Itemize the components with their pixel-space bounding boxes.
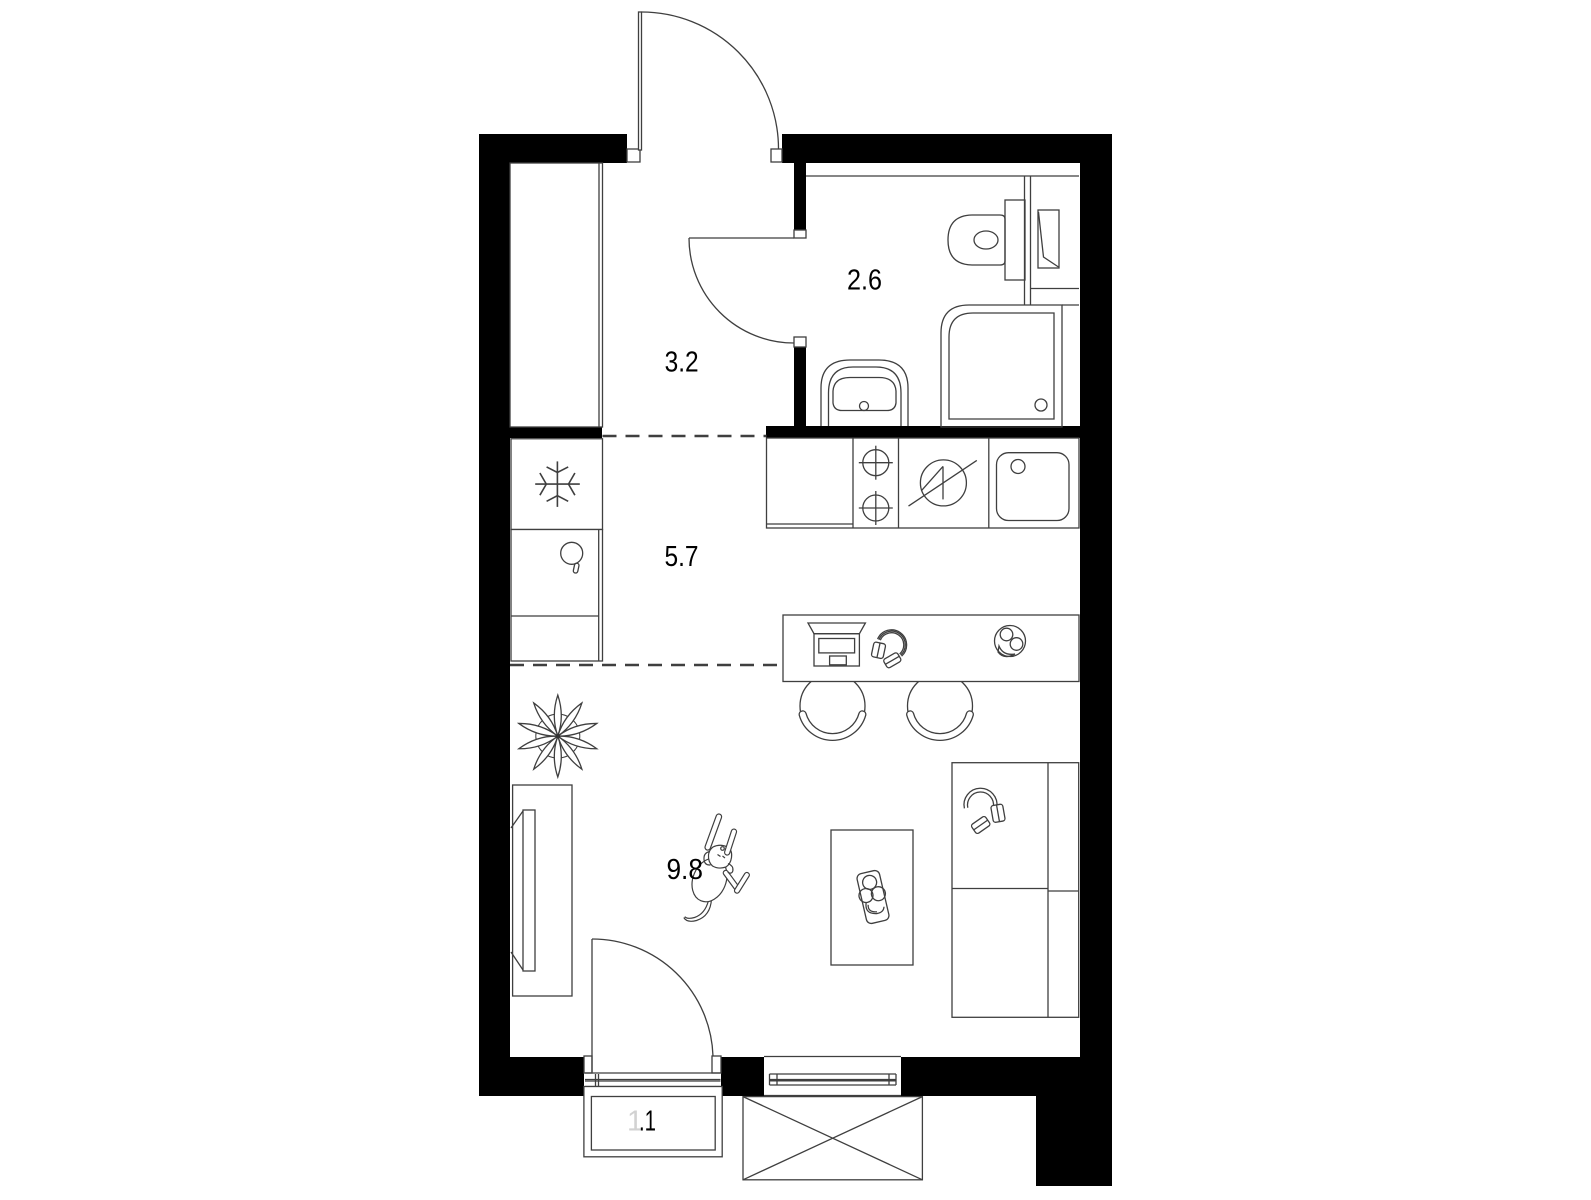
svg-text:5.7: 5.7 xyxy=(665,541,699,573)
svg-text:9.8: 9.8 xyxy=(666,854,703,886)
svg-text:.1: .1 xyxy=(639,1106,656,1138)
svg-text:2.6: 2.6 xyxy=(847,265,882,297)
svg-text:3.2: 3.2 xyxy=(665,347,699,379)
